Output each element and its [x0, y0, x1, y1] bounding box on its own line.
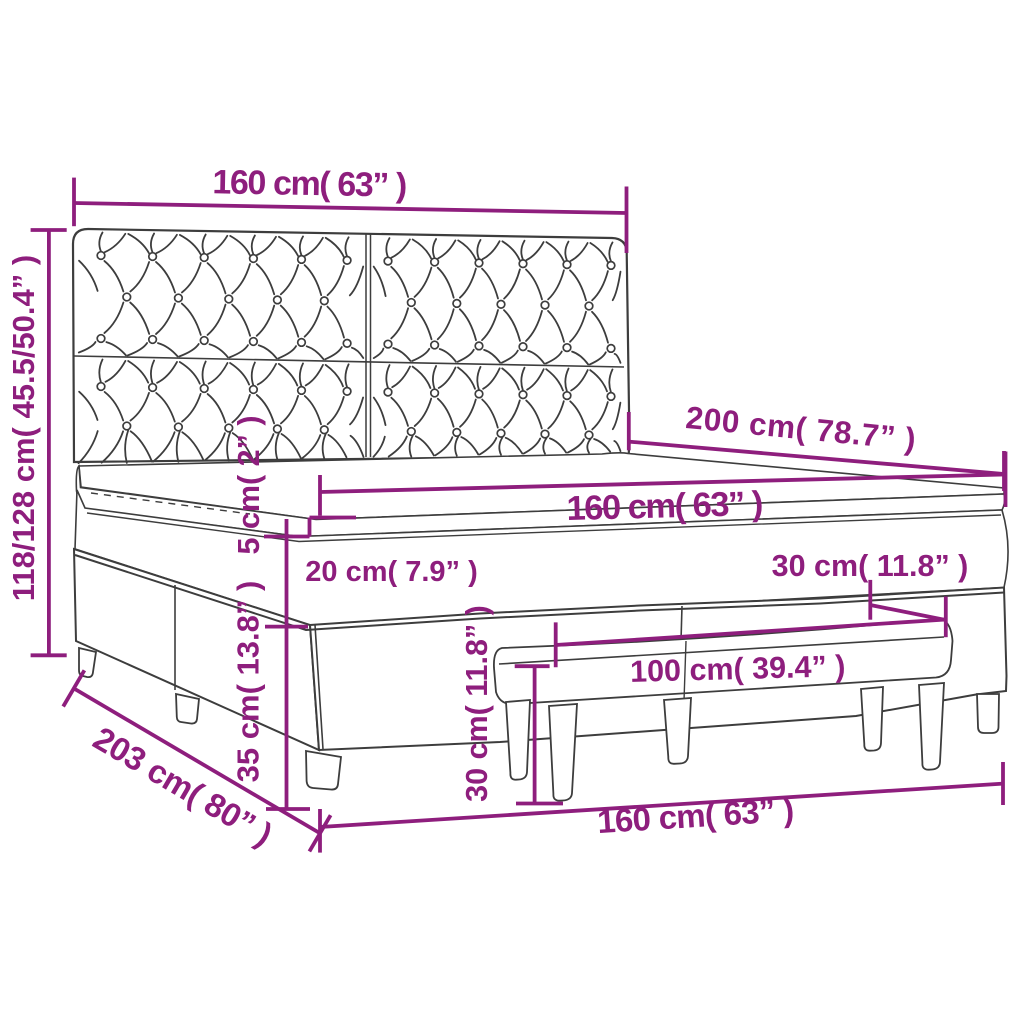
svg-text:160 cm( 63” ): 160 cm( 63” ) [566, 485, 762, 528]
svg-text:160 cm( 63” ): 160 cm( 63” ) [212, 163, 406, 204]
svg-text:100 cm( 39.4” ): 100 cm( 39.4” ) [630, 649, 846, 689]
svg-text:35 cm( 13.8” ): 35 cm( 13.8” ) [231, 581, 266, 783]
svg-text:20 cm( 7.9” ): 20 cm( 7.9” ) [305, 556, 477, 588]
svg-text:30 cm( 11.8” ): 30 cm( 11.8” ) [772, 549, 969, 583]
svg-text:5 cm( 2” ): 5 cm( 2” ) [232, 416, 266, 555]
svg-text:118/128 cm( 45.5/50.4” ): 118/128 cm( 45.5/50.4” ) [6, 255, 41, 601]
svg-text:160 cm( 63” ): 160 cm( 63” ) [596, 791, 794, 840]
svg-text:30 cm( 11.8” ): 30 cm( 11.8” ) [460, 605, 494, 802]
